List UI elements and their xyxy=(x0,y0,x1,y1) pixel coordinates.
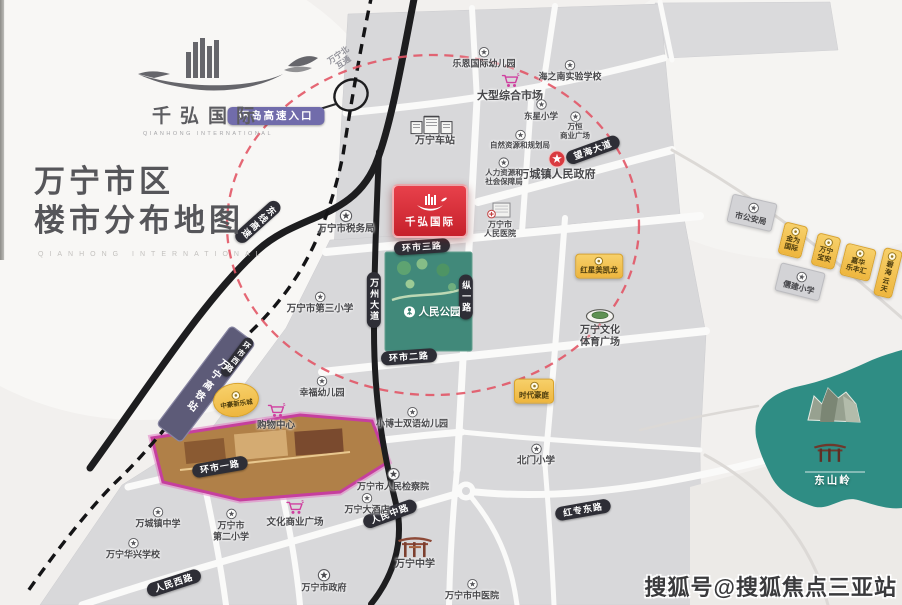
qianhong-logo-icon xyxy=(98,16,318,94)
map-title-line1: 万宁市区 xyxy=(34,163,346,202)
brand-block: 千弘国际 QIANHONG INTERNATIONAL 万宁市区 楼市分布地图 … xyxy=(26,16,346,258)
project-badge-label: 千弘国际 xyxy=(405,214,455,229)
project-logo-icon xyxy=(413,193,447,213)
logo-subtext: QIANHONG INTERNATIONAL xyxy=(88,131,328,137)
faint-caption: QIANHONG INTERNATIONAL xyxy=(38,251,346,258)
peoples-park-area xyxy=(385,252,472,351)
dongshanling-label: 东山岭 xyxy=(814,473,852,488)
map-title-line2: 楼市分布地图 xyxy=(34,202,346,241)
watermark-text: 搜狐号@搜狐焦点三亚站 xyxy=(645,570,897,602)
project-badge: 千弘国际 xyxy=(392,184,468,238)
photo-edge-shadow xyxy=(0,0,5,260)
logo-text: 千弘国际 xyxy=(88,101,328,128)
wanning-realestate-map: 环岛高速入口万宁北 互通东线高速万州大道环市三路纵一路环市二路环市一路环市西路人… xyxy=(0,0,902,605)
